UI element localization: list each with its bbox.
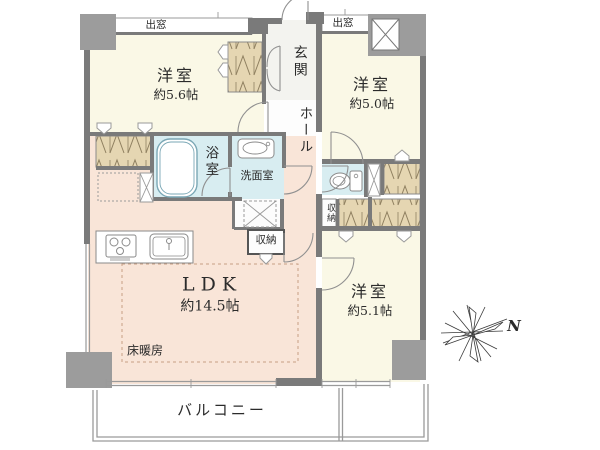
ldk-label: LDK xyxy=(182,275,242,296)
entrance-door-arc xyxy=(282,0,308,20)
bedroom-ne-label: 洋室 xyxy=(353,76,391,94)
floorplan-canvas: 出窓 出窓 洋室 約5.6帖 玄関 ホール 洋室 約5.0帖 浴室 洗面室 収納… xyxy=(0,0,600,450)
bedroom-se-size: 約5.1帖 xyxy=(348,304,393,318)
washroom-label: 洗面室 xyxy=(241,170,274,182)
bedroom-nw-size: 約5.6帖 xyxy=(154,88,199,102)
bedroom-nw-label: 洋室 xyxy=(157,67,195,85)
balcony-label: バルコニー xyxy=(177,402,267,419)
column-sw xyxy=(66,352,112,388)
bedroom-ne-size: 約5.0帖 xyxy=(350,97,395,111)
laundry-space xyxy=(234,199,282,229)
kitchen-counter xyxy=(96,231,193,263)
bay-window-nw xyxy=(114,18,252,34)
bedroom-se-label: 洋室 xyxy=(351,283,389,301)
bay-window-ne-label: 出窓 xyxy=(333,18,354,30)
bathroom-label: 浴室 xyxy=(203,146,218,179)
storage-hall-label: 収納 xyxy=(324,203,334,223)
storage-ldk-label: 収納 xyxy=(256,235,277,247)
window-west xyxy=(86,244,90,352)
balcony-divider xyxy=(339,388,343,441)
floor-heating-label: 床暖房 xyxy=(127,344,163,357)
bay-window-nw-label: 出窓 xyxy=(146,20,167,32)
ldk-size: 約14.5帖 xyxy=(180,299,239,314)
column-nw xyxy=(80,14,116,50)
column-se xyxy=(392,340,426,380)
compass-icon xyxy=(441,305,507,362)
bathtub-icon xyxy=(157,139,197,197)
stove-icon xyxy=(106,235,136,257)
hall-label: ホール xyxy=(297,106,312,156)
entrance-label: 玄関 xyxy=(291,45,306,79)
compass-north-label: N xyxy=(507,318,521,335)
